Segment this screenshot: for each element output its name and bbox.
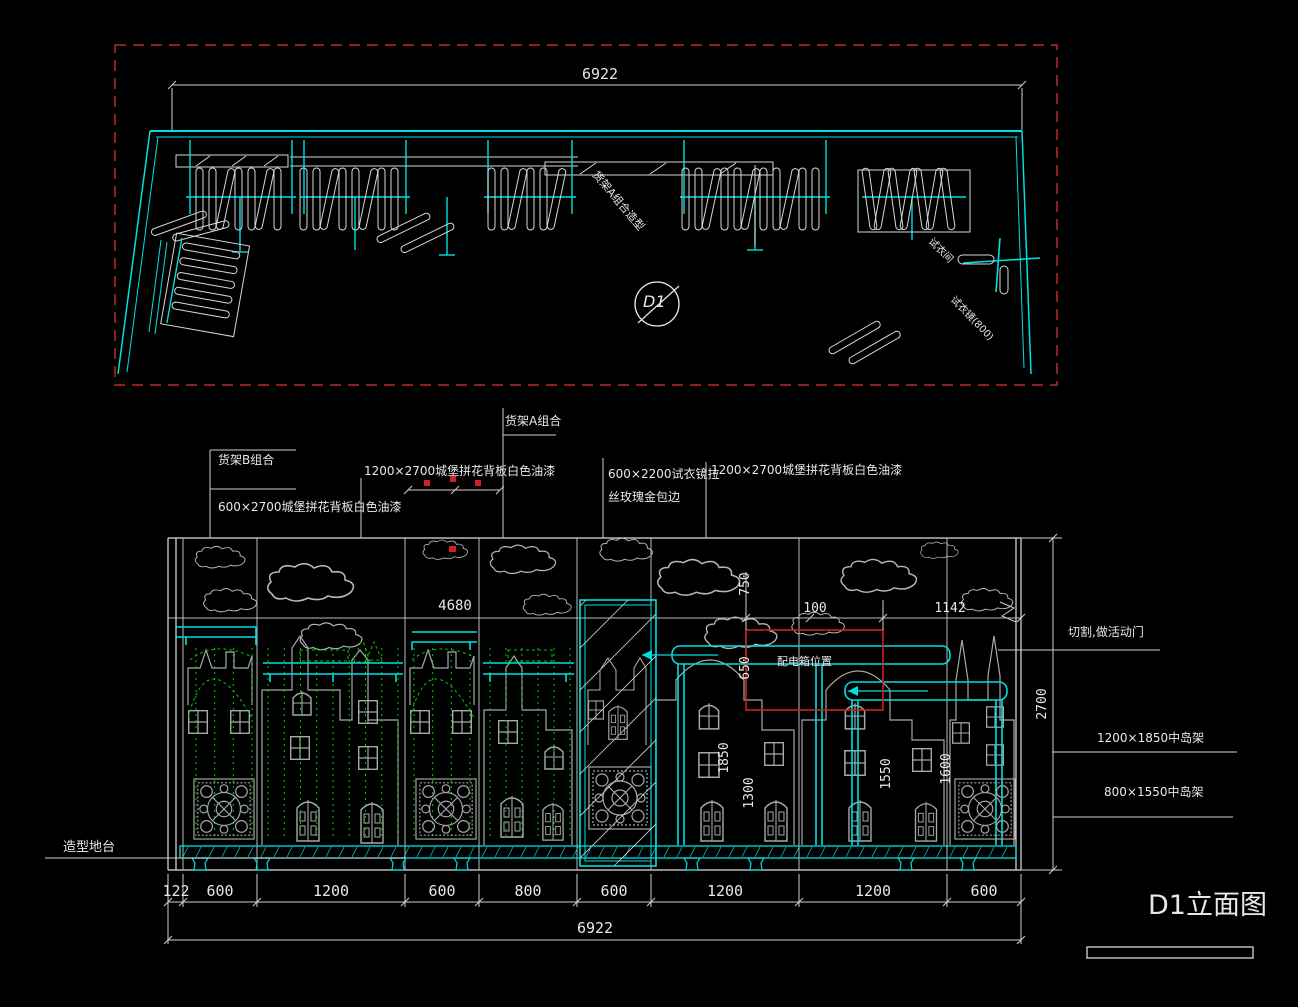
plan-boundary	[115, 45, 1057, 385]
dim-b6: 1200	[707, 882, 743, 900]
drawing-svg: 6922	[0, 0, 1298, 1007]
right-callout-leaders	[998, 534, 1237, 874]
plan-left-wall-inner	[149, 240, 167, 334]
dim-2700: 2700	[1035, 688, 1050, 719]
plan-slanted-rack	[161, 233, 250, 336]
title-underline	[1087, 947, 1253, 958]
section-marker-label: D1	[643, 292, 666, 311]
elevation-view: 配电箱位置 4680 750 100 1142 650 1850 1300 15…	[45, 408, 1267, 958]
elevation-green-arches	[188, 638, 552, 718]
callout-cut-door: 切割,做活动门	[1068, 624, 1144, 639]
bottom-dimension-texts: 122 600 1200 600 800 600 1200 1200 600	[162, 882, 997, 900]
dim-b5: 600	[600, 882, 627, 900]
elevation-castle-skylines	[188, 636, 1014, 845]
dim-b2: 1200	[313, 882, 349, 900]
cad-canvas: 6922	[0, 0, 1298, 1007]
callout-backboard-600: 600×2700城堡拼花背板白色油漆	[218, 499, 402, 514]
dim-b0: 122	[162, 882, 189, 900]
dim-100: 100	[803, 601, 826, 616]
drawing-title: D1立面图	[1148, 890, 1267, 921]
power-box-outline	[746, 630, 883, 710]
callout-rack-b: 货架B组合	[218, 452, 274, 467]
dim-1600: 1600	[939, 753, 954, 784]
callout-platform: 造型地台	[63, 840, 115, 855]
plan-view: 6922	[115, 45, 1057, 385]
dim-b3: 600	[428, 882, 455, 900]
dim-1550: 1550	[879, 758, 894, 789]
plan-label-fitting-mirror: 试衣镜(800)	[948, 293, 997, 343]
callout-rack-a: 货架A组合	[505, 413, 561, 428]
plan-label-fitting-room: 试衣间	[926, 235, 956, 265]
callout-mirror-line2: 丝玫瑰金包边	[608, 489, 680, 504]
dim-1142: 1142	[934, 601, 965, 616]
dim-1300: 1300	[742, 777, 757, 808]
red-markers	[424, 476, 481, 552]
dim-650: 650	[738, 656, 753, 679]
dim-b7: 1200	[855, 882, 891, 900]
callout-island-small: 800×1550中岛架	[1104, 784, 1204, 799]
plan-total-dim-text: 6922	[582, 65, 618, 83]
callout-backboard-1200-right: 1200×2700城堡拼花背板白色油漆	[711, 462, 902, 477]
plan-dimension-6922	[168, 81, 1026, 130]
dim-b1: 600	[206, 882, 233, 900]
dim-4680: 4680	[438, 598, 472, 614]
plan-label-rack-a: 货架A组合造型	[590, 168, 648, 233]
callout-island-large: 1200×1850中岛架	[1097, 730, 1204, 745]
dim-b4: 800	[514, 882, 541, 900]
callout-backboard-1200-left: 1200×2700城堡拼花背板白色油漆	[364, 463, 555, 478]
dim-750: 750	[738, 572, 753, 595]
power-box-label: 配电箱位置	[777, 654, 832, 668]
dim-1850: 1850	[717, 742, 732, 773]
elevation-clouds	[195, 538, 1013, 649]
callout-mirror-line1: 600×2200试衣镜拉	[608, 466, 720, 481]
dim-b8: 600	[970, 882, 997, 900]
dim-total: 6922	[577, 919, 613, 937]
arrow-left-icon	[848, 686, 858, 696]
section-marker-icon: D1	[635, 282, 679, 326]
